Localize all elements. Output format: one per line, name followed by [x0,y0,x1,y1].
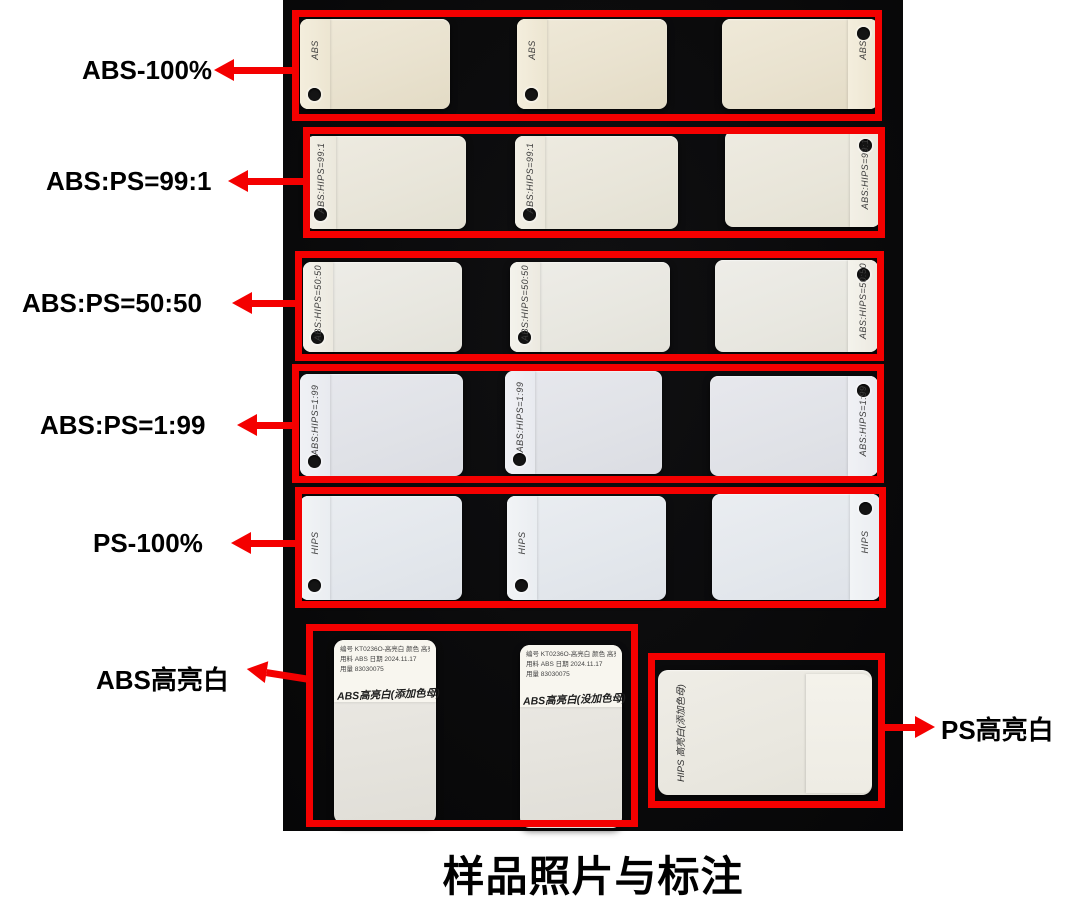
arrow-head-right-icon [915,716,935,738]
arrow-shaft [251,540,297,547]
annotation-box-row-3 [295,251,884,361]
arrow-head-left-icon [232,292,252,314]
annotation-arrow [228,170,305,192]
annotation-arrow [232,292,297,314]
figure-page: ABS ABS ABS ABS:HIPS=99:1 ABS:HIPS=99:1 … [0,0,1074,900]
arrow-shaft [248,178,305,185]
row-label-abs-ps-99-1: ABS:PS=99:1 [46,166,211,197]
annotation-box-ps-white [648,653,885,808]
arrow-shaft [257,422,294,429]
arrow-shaft [252,300,297,307]
row-label-abs-100: ABS-100% [82,55,212,86]
annotation-arrow [237,414,294,436]
arrow-head-left-icon [231,532,251,554]
row-label-ps-100: PS-100% [93,528,203,559]
annotation-arrow [214,59,298,81]
annotation-box-row-4 [292,364,884,483]
row-label-abs-ps-1-99: ABS:PS=1:99 [40,410,205,441]
arrow-head-left-icon [228,170,248,192]
annotation-box-row-5 [295,487,886,608]
arrow-shaft [883,724,915,731]
arrow-shaft [266,669,311,683]
label-ps-gloss-white: PS高亮白 [941,710,1054,747]
arrow-shaft [234,67,298,74]
arrow-head-left-icon [214,59,234,81]
annotation-arrow [231,532,297,554]
annotation-box-abs-white [306,624,638,827]
arrow-head-left-icon [245,658,268,683]
annotation-box-row-2 [303,127,885,238]
label-abs-gloss-white: ABS高亮白 [96,660,229,697]
arrow-head-left-icon [237,414,257,436]
annotation-box-row-1 [292,10,882,121]
figure-caption: 样品照片与标注 [283,843,903,900]
annotation-arrow [883,716,935,738]
row-label-abs-ps-50-50: ABS:PS=50:50 [22,288,202,319]
